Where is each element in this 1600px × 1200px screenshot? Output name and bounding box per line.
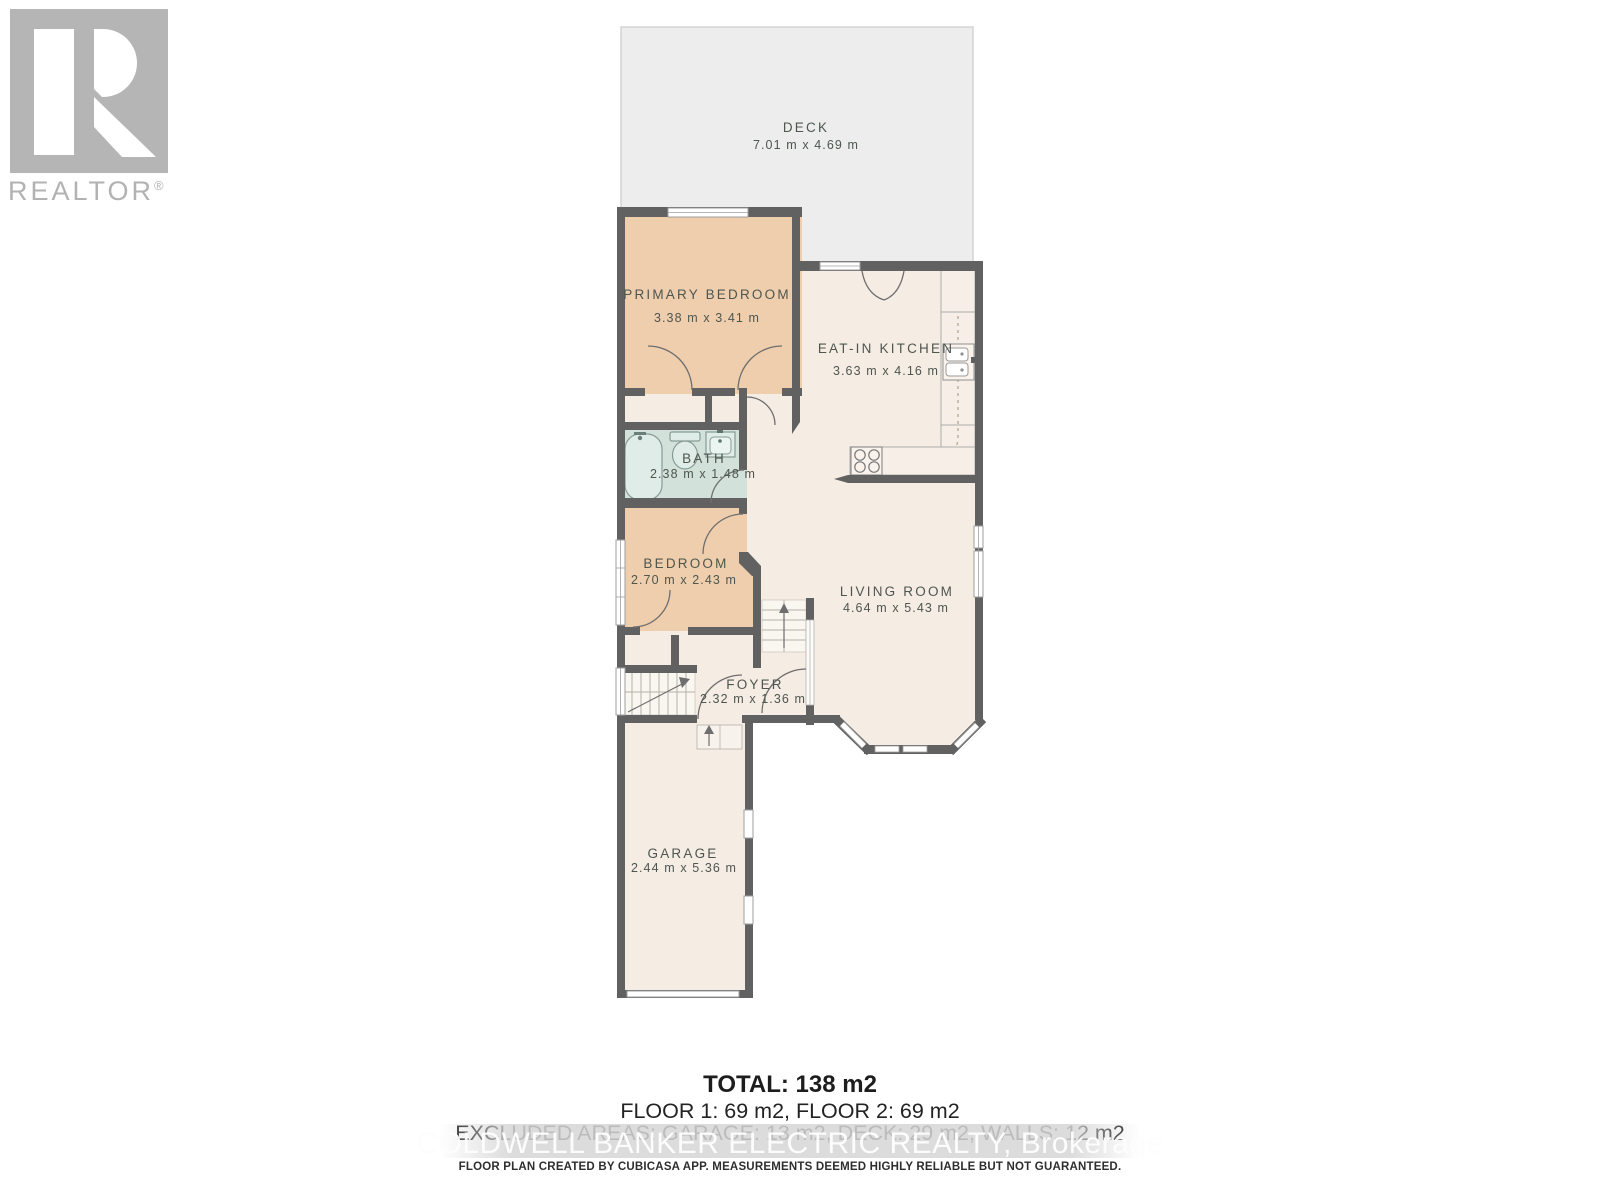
total-area-text: TOTAL: 138 m2 <box>703 1071 877 1099</box>
primary-bedroom-label: PRIMARY BEDROOM <box>623 287 791 302</box>
deck-label: DECK <box>783 120 829 135</box>
bedroom-dims: 2.70 m x 2.43 m <box>631 573 737 587</box>
floor-plan-drawing <box>0 0 1600 1200</box>
stove-icon <box>851 447 882 475</box>
kitchen-dims: 3.63 m x 4.16 m <box>833 364 939 378</box>
garage-step <box>697 725 742 749</box>
kitchen-label: EAT-IN KITCHEN <box>818 341 954 356</box>
garage-dims: 2.44 m x 5.36 m <box>631 861 737 875</box>
garage-label: GARAGE <box>648 846 719 861</box>
bathtub-icon <box>625 432 662 500</box>
bath-dims: 2.38 m x 1.48 m <box>650 467 756 481</box>
deck-dims: 7.01 m x 4.69 m <box>753 138 859 152</box>
bath-label: BATH <box>682 451 726 466</box>
brokerage-watermark: COLDWELL BANKER ELECTRIC REALTY, Brokera… <box>416 1127 1163 1161</box>
bedroom-label: BEDROOM <box>643 556 728 571</box>
living-room-label: LIVING ROOM <box>840 584 954 599</box>
foyer-dims: 2.32 m x 1.36 m <box>700 692 806 706</box>
floor-plan-page: REALTOR® <box>0 0 1600 1200</box>
living-room-dims: 4.64 m x 5.43 m <box>843 601 949 615</box>
disclaimer-text: FLOOR PLAN CREATED BY CUBICASA APP. MEAS… <box>459 1161 1122 1173</box>
primary-bedroom-dims: 3.38 m x 3.41 m <box>654 311 760 325</box>
foyer-label: FOYER <box>726 677 784 692</box>
